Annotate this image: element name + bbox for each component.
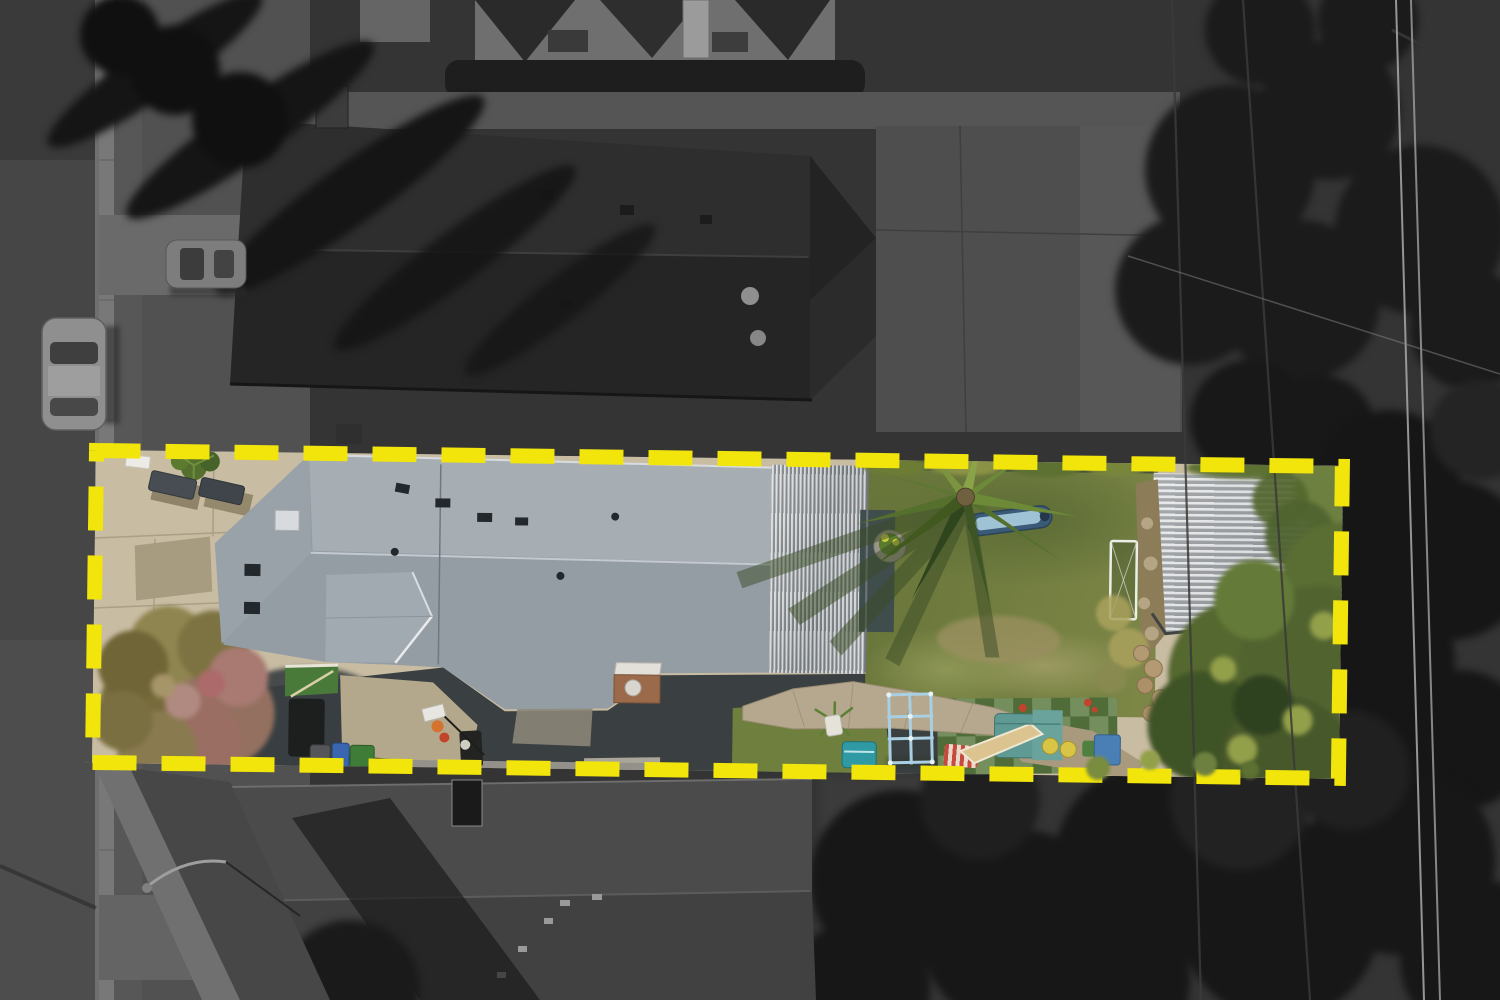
aerial-photo <box>0 0 1500 1000</box>
power-line-dark <box>1243 0 1310 1000</box>
power-line-dark <box>1172 0 1201 1000</box>
power-line-light <box>1396 0 1424 1000</box>
overlay <box>0 0 1500 1000</box>
property-boundary-dashed <box>93 451 1343 779</box>
power-lines <box>1128 0 1500 1000</box>
power-line-diagonal <box>1128 256 1500 374</box>
power-line-light <box>1411 0 1440 1000</box>
